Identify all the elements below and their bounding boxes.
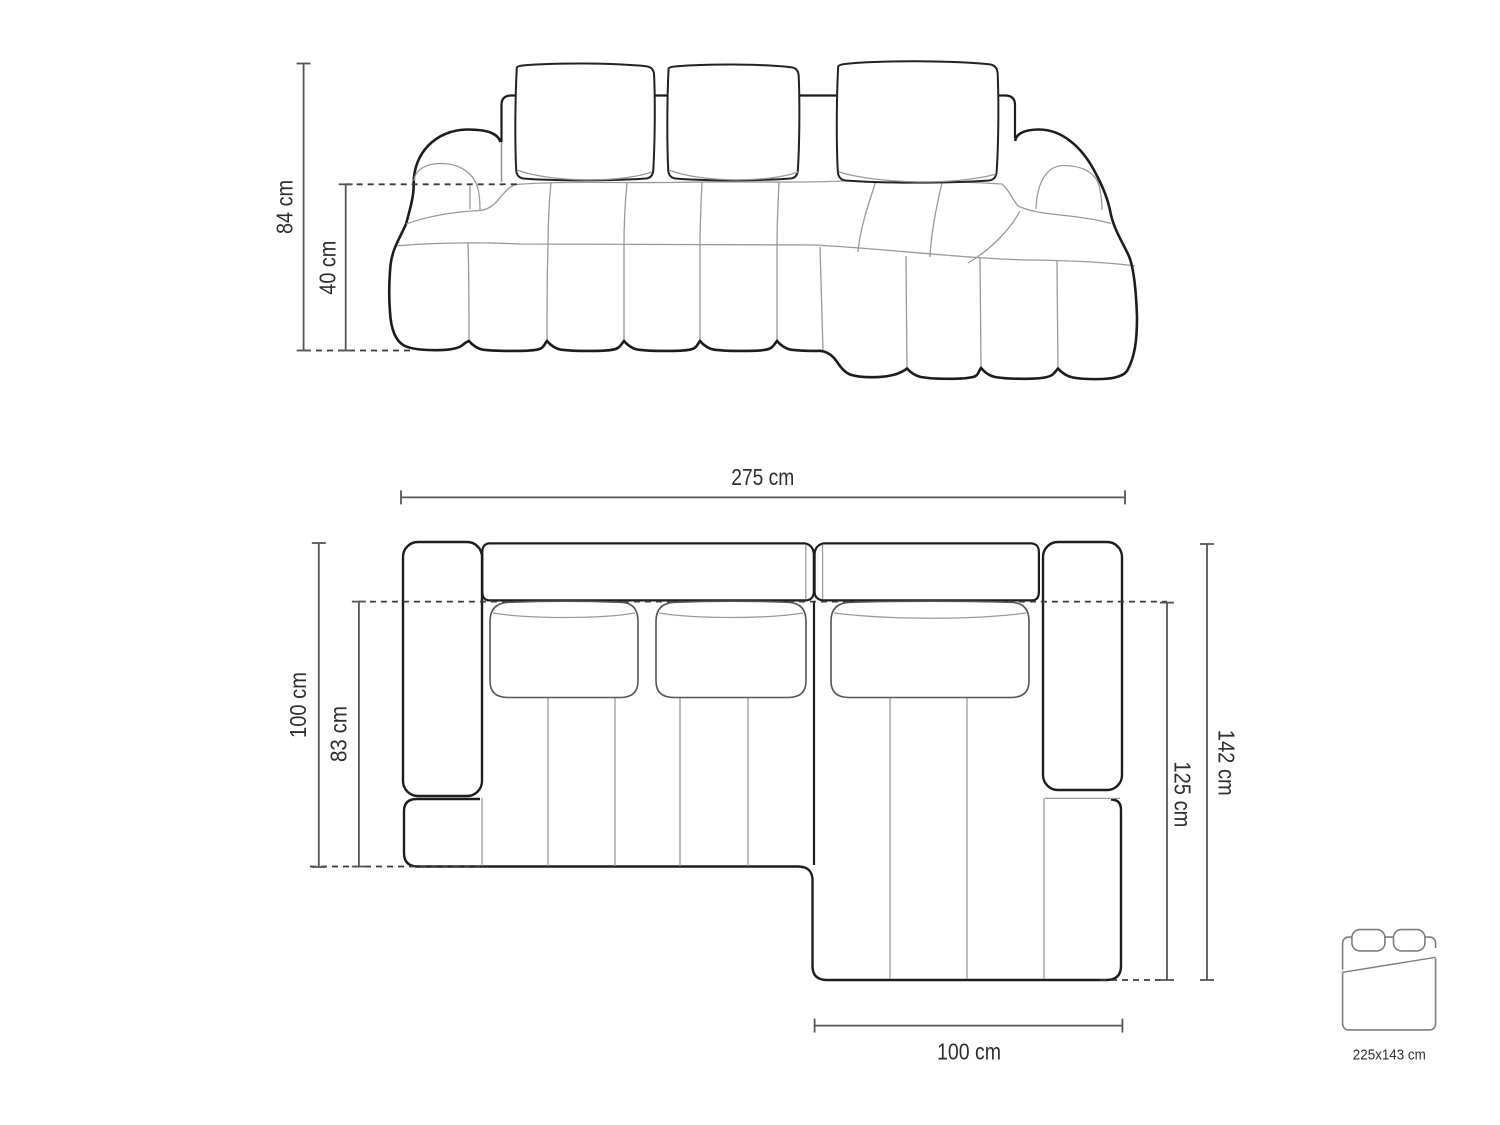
svg-text:40 cm: 40 cm — [315, 241, 341, 295]
svg-text:84 cm: 84 cm — [272, 180, 298, 234]
svg-text:100 cm: 100 cm — [285, 672, 311, 738]
svg-text:83 cm: 83 cm — [325, 706, 351, 762]
svg-text:142 cm: 142 cm — [1214, 730, 1240, 796]
svg-text:100 cm: 100 cm — [937, 1039, 1001, 1065]
svg-text:225x143 cm: 225x143 cm — [1353, 1047, 1426, 1063]
svg-text:275 cm: 275 cm — [731, 464, 794, 490]
svg-text:125 cm: 125 cm — [1169, 761, 1195, 827]
